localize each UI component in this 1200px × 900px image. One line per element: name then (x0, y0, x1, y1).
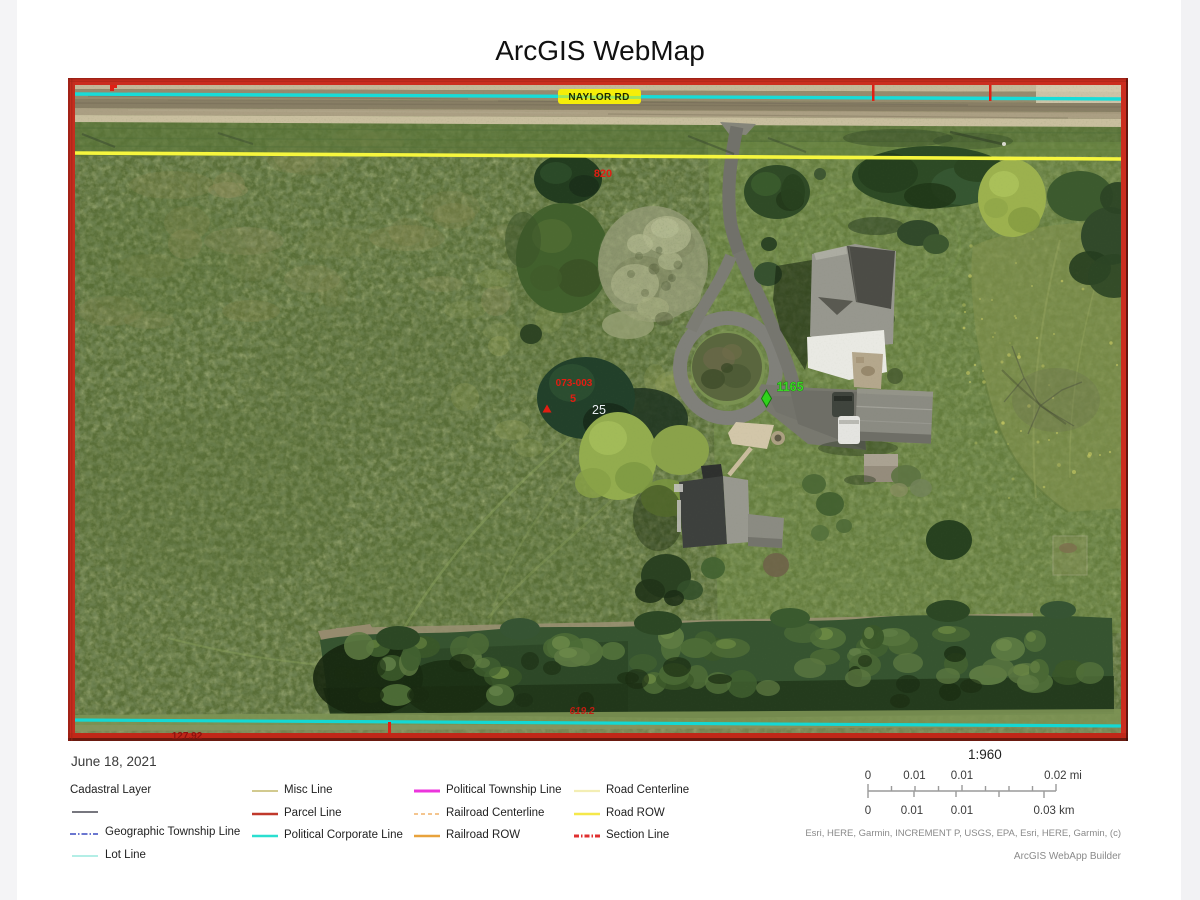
svg-text:5: 5 (570, 393, 576, 405)
svg-text:25: 25 (592, 403, 606, 417)
svg-text:0.03 km: 0.03 km (1034, 805, 1075, 817)
svg-text:0.01: 0.01 (901, 805, 923, 817)
svg-text:0.01: 0.01 (951, 805, 973, 817)
svg-text:127.92: 127.92 (172, 731, 203, 741)
svg-text:0.01: 0.01 (903, 770, 925, 782)
svg-text:0.01: 0.01 (951, 770, 973, 782)
svg-text:073-003: 073-003 (556, 378, 593, 389)
svg-text:820: 820 (594, 168, 612, 180)
svg-text:1165: 1165 (776, 380, 803, 394)
svg-text:0: 0 (865, 770, 871, 782)
svg-text:619.2: 619.2 (569, 706, 594, 717)
svg-text:NAYLOR RD: NAYLOR RD (568, 92, 629, 103)
svg-text:0: 0 (865, 805, 871, 817)
svg-text:0.02 mi: 0.02 mi (1044, 770, 1082, 782)
